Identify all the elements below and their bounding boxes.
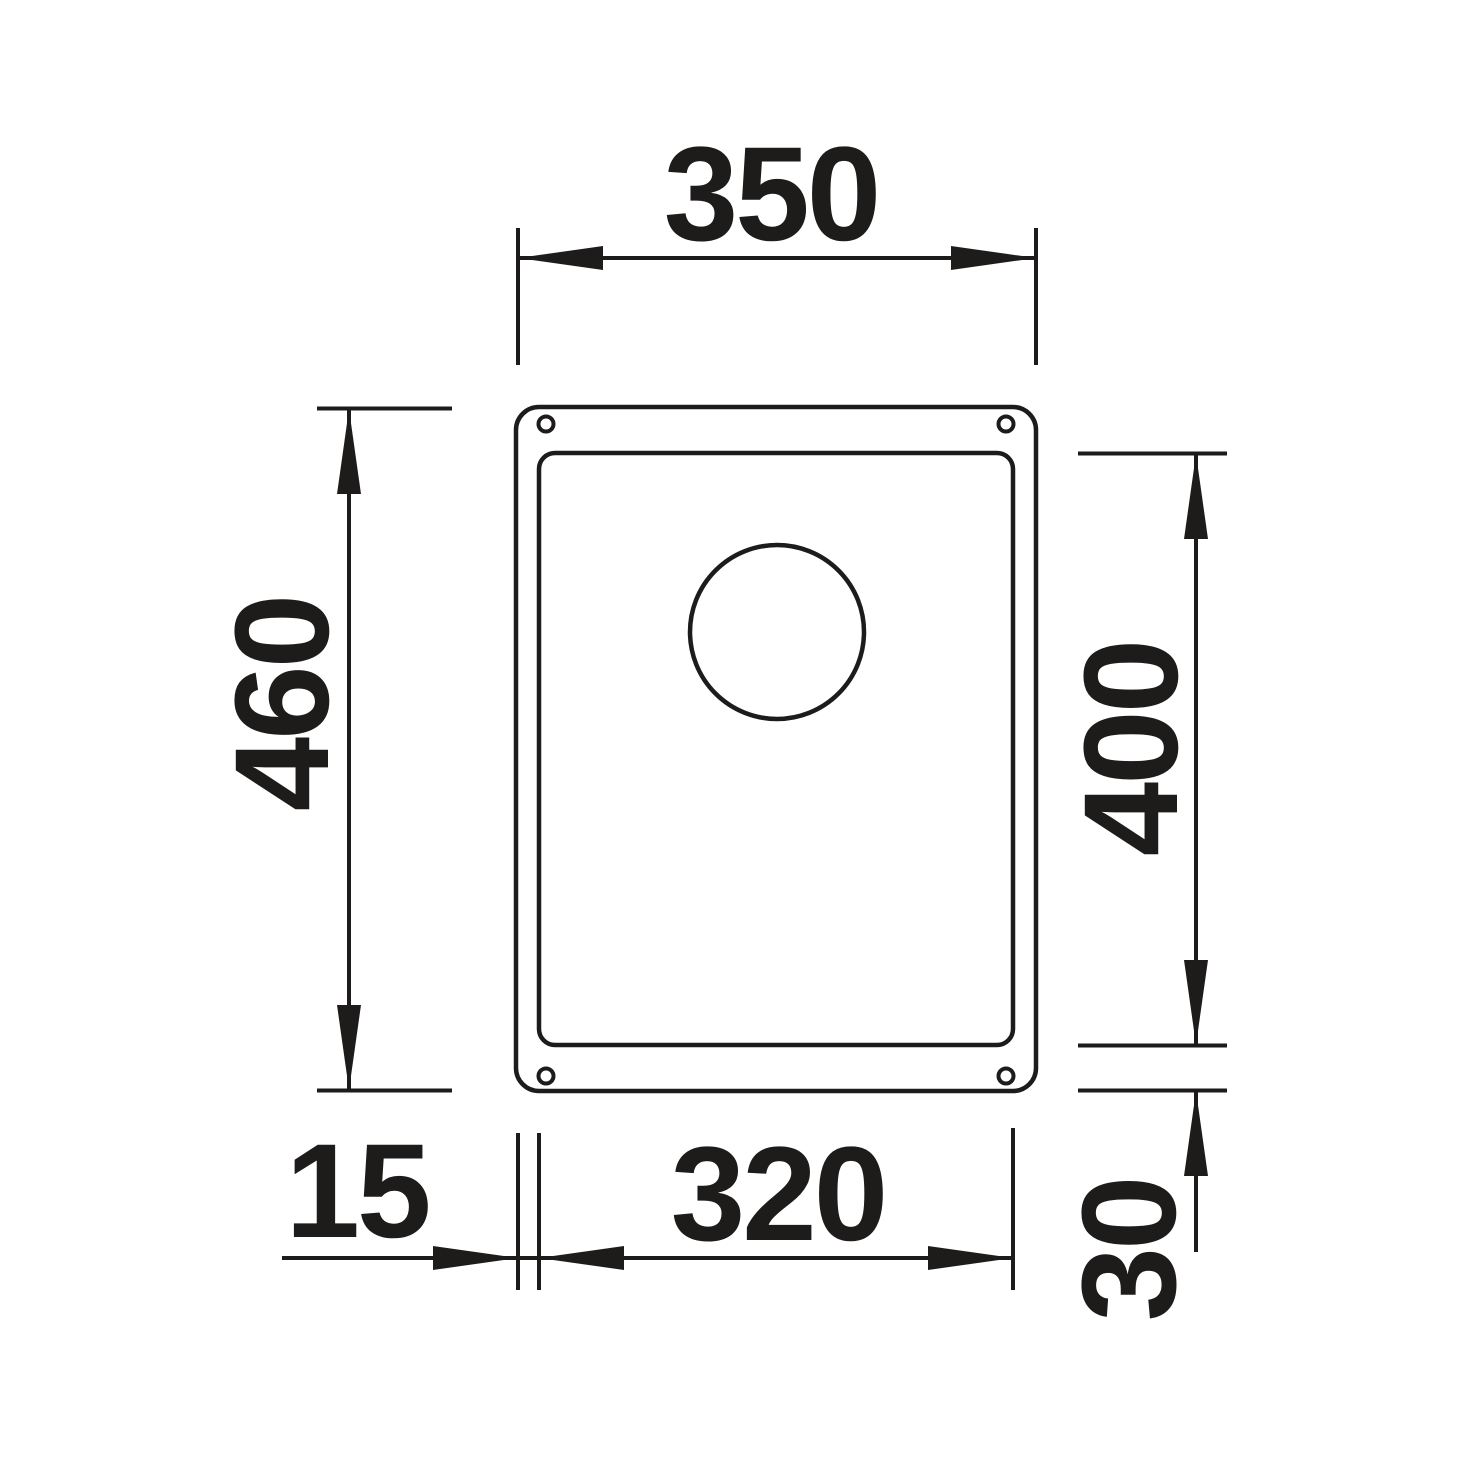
sink-outer-outline [516, 407, 1036, 1091]
arrow-320-right [928, 1246, 1013, 1270]
arrow-320-left [539, 1246, 624, 1270]
drain-circle [690, 545, 864, 719]
arrow-400-bottom [1184, 960, 1208, 1045]
mounting-hole-bottom-left [539, 1069, 554, 1084]
mounting-hole-top-left [539, 417, 554, 432]
arrow-400-top [1184, 454, 1208, 539]
mounting-hole-top-right [999, 417, 1014, 432]
arrow-350-right [951, 246, 1036, 270]
dim-label-inner-width: 320 [671, 1120, 886, 1269]
dim-label-inner-height: 400 [1057, 642, 1206, 857]
arrow-350-left [518, 246, 603, 270]
dim-label-overall-height: 460 [208, 597, 357, 812]
mounting-hole-bottom-right [999, 1069, 1014, 1084]
arrow-30-up [1184, 1091, 1208, 1176]
sink-dimension-diagram: 350 460 400 320 15 30 [0, 0, 1464, 1464]
dim-label-overall-width: 350 [664, 120, 879, 269]
arrow-15-right [433, 1246, 518, 1270]
sink-bowl-outline [539, 453, 1013, 1045]
arrow-460-top [337, 409, 361, 494]
dim-label-bottom-inset: 30 [1055, 1178, 1204, 1321]
labels-group: 350 460 400 320 15 30 [208, 120, 1206, 1322]
dim-label-left-inset: 15 [285, 1117, 428, 1266]
arrow-460-bottom [337, 1005, 361, 1090]
technical-drawing-canvas: 350 460 400 320 15 30 [0, 0, 1464, 1464]
